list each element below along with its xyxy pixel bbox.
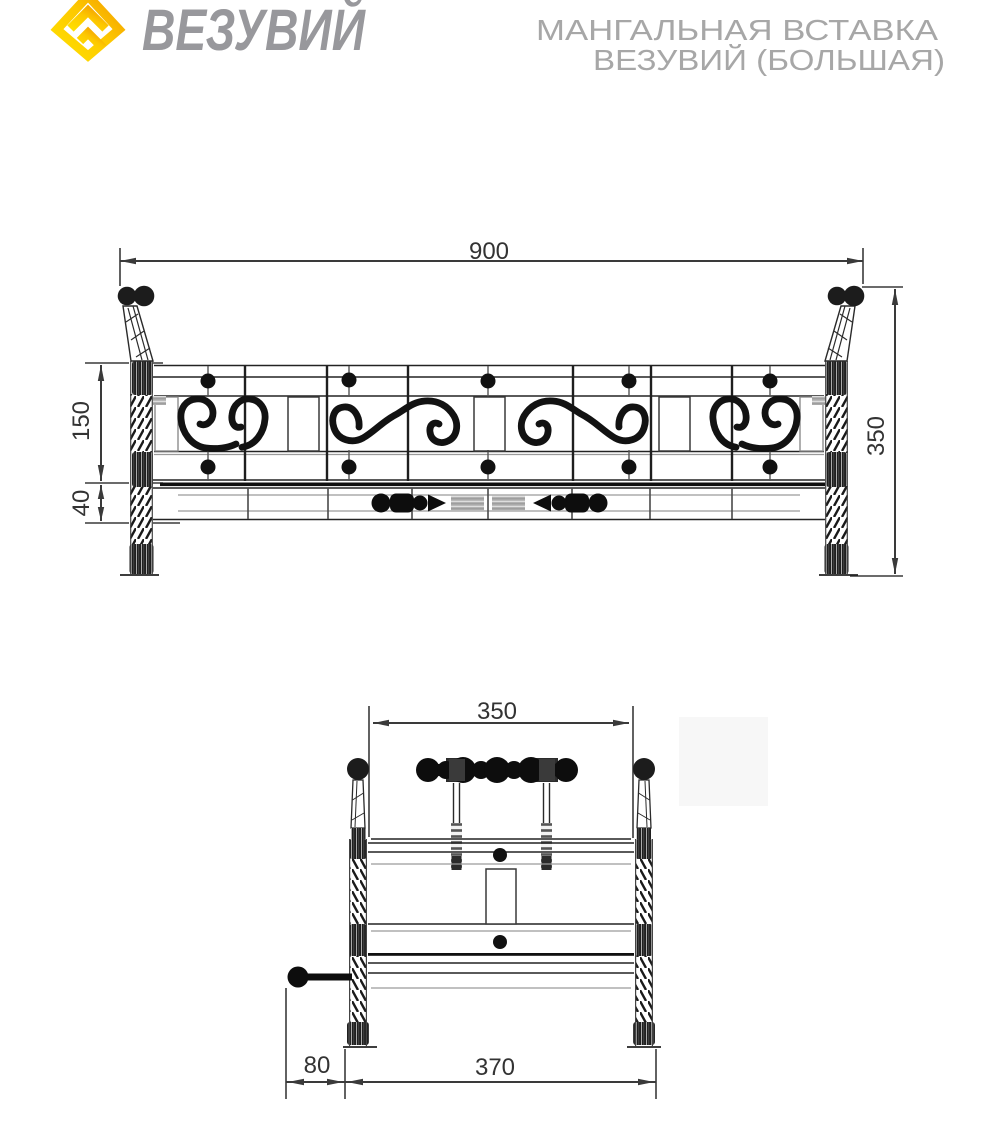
svg-text:40: 40 <box>68 490 95 517</box>
svg-text:МАНГАЛЬНАЯ ВСТАВКА: МАНГАЛЬНАЯ ВСТАВКА <box>536 15 939 47</box>
svg-text:350: 350 <box>477 698 517 725</box>
svg-text:150: 150 <box>68 401 95 441</box>
svg-text:80: 80 <box>304 1052 331 1079</box>
svg-text:ВЕЗУВИЙ: ВЕЗУВИЙ <box>142 0 366 63</box>
svg-text:350: 350 <box>863 416 890 456</box>
svg-text:ВЕЗУВИЙ (БОЛЬШАЯ): ВЕЗУВИЙ (БОЛЬШАЯ) <box>593 43 945 77</box>
svg-text:900: 900 <box>469 238 509 265</box>
svg-text:370: 370 <box>475 1054 515 1081</box>
